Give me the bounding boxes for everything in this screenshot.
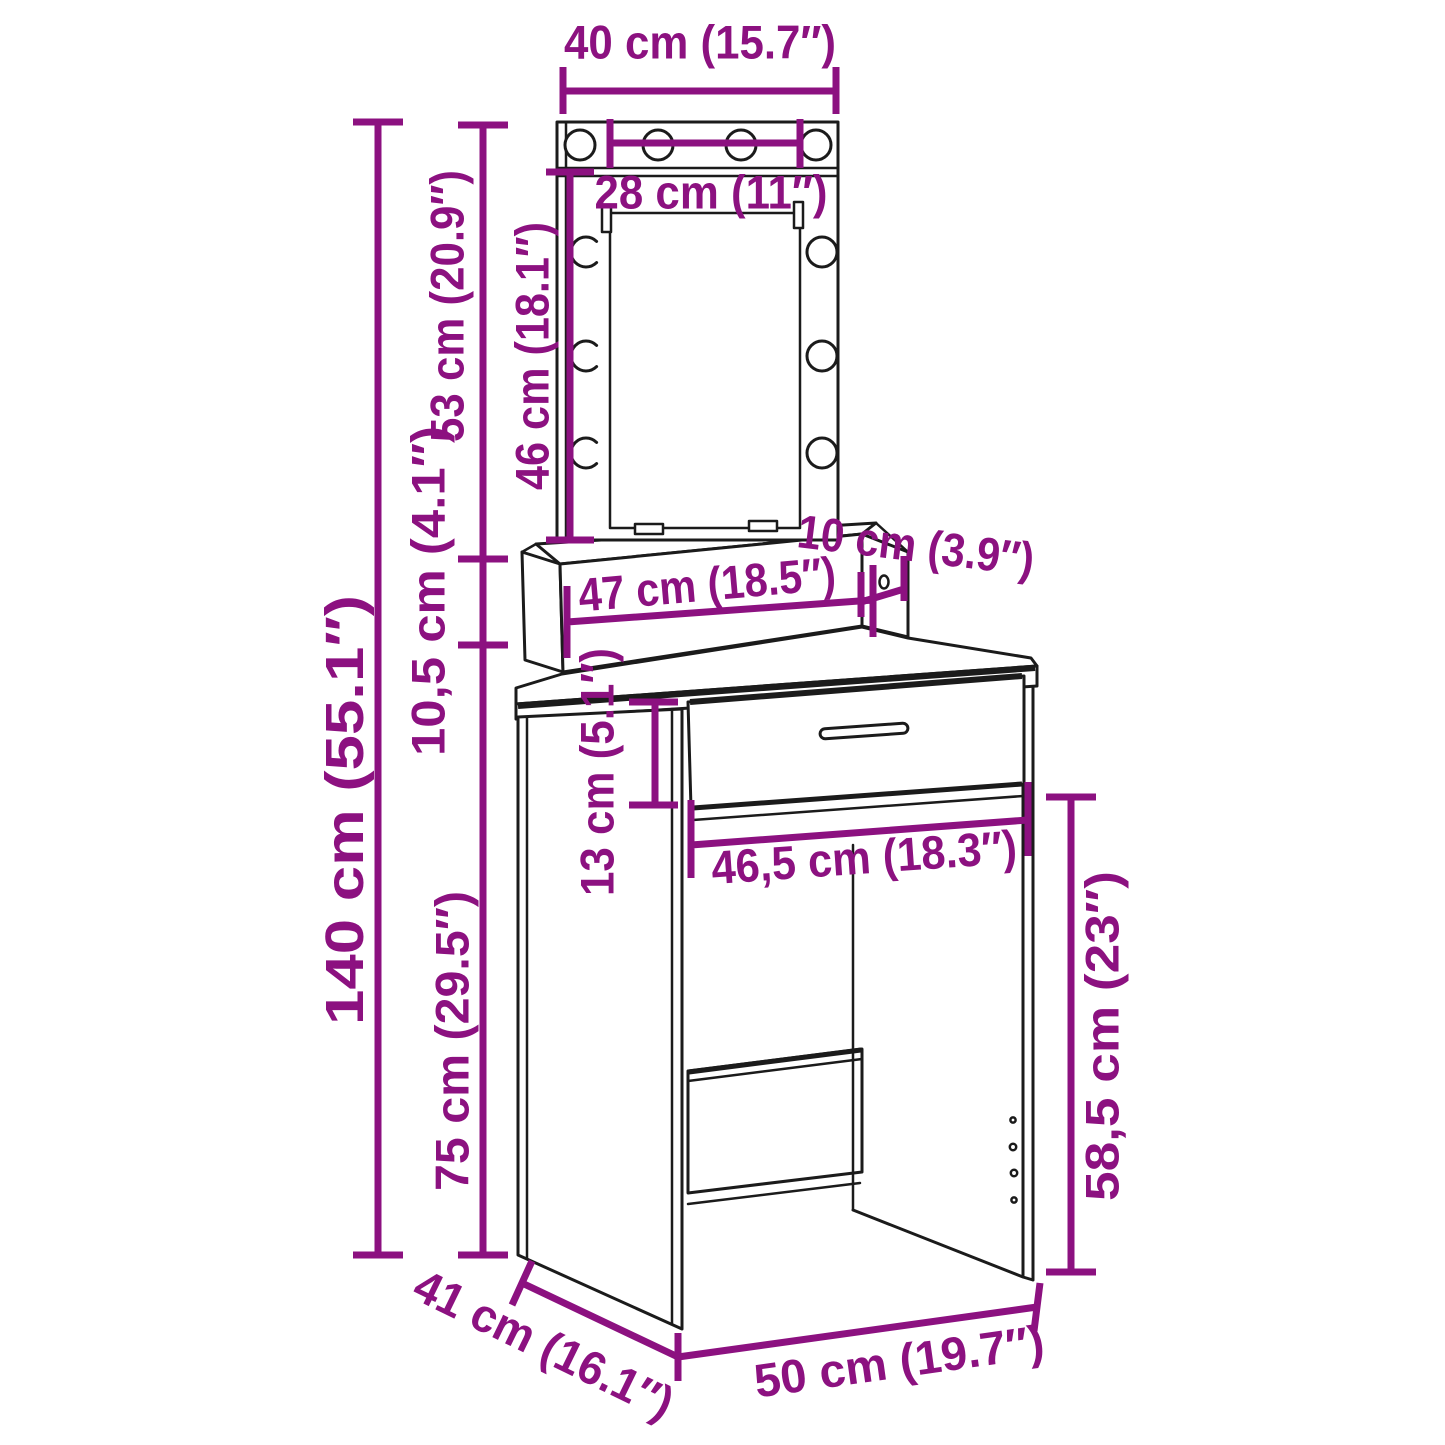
dimension-label-opening-width: 46,5 cm (18.3″) xyxy=(710,820,1019,894)
mirror-foot-tab xyxy=(635,524,663,534)
dimension-label-mirror-total-height: 53 cm (20.9″) xyxy=(421,170,474,442)
screw-hole-icon xyxy=(1010,1117,1015,1122)
riser-left-end xyxy=(522,552,563,672)
dimension-label-mirror-inner-width: 28 cm (11″) xyxy=(595,166,828,219)
screw-hole-icon xyxy=(1011,1170,1017,1176)
screw-hole-icon xyxy=(1010,1144,1016,1150)
light-bulb-icon xyxy=(807,341,837,371)
vanity-dimension-drawing: 40 cm (15.7″) 28 cm (11″) 53 cm (20.9″) … xyxy=(0,0,1445,1445)
screw-hole-icon xyxy=(1011,1197,1016,1202)
light-bulb-icon xyxy=(801,130,831,160)
dimension-label-drawer-height: 13 cm (5.1″) xyxy=(571,648,624,896)
light-bulb-icon xyxy=(565,130,595,160)
mirror-foot-tab xyxy=(749,521,777,531)
dimension-label-table-height: 75 cm (29.5″) xyxy=(426,891,479,1191)
back-panel xyxy=(688,1049,862,1204)
dimension-label-riser-height: 10,5 cm (4.1″) xyxy=(402,426,455,756)
light-bulb-icon xyxy=(807,237,837,267)
dimension-label-mirror-outer-width: 40 cm (15.7″) xyxy=(564,16,836,69)
light-bulb-icon xyxy=(807,438,837,468)
dimension-diagram: 40 cm (15.7″) 28 cm (11″) 53 cm (20.9″) … xyxy=(0,0,1445,1445)
dimension-label-clearance-height: 58,5 cm (23″) xyxy=(1076,871,1129,1201)
dimension-label-total-height: 140 cm (55.1″) xyxy=(315,595,375,1025)
dimension-label-mirror-glass-height: 46 cm (18.1″) xyxy=(506,222,559,490)
drawer xyxy=(688,676,1024,820)
dimension-line-mirror-outer-width xyxy=(563,67,836,114)
